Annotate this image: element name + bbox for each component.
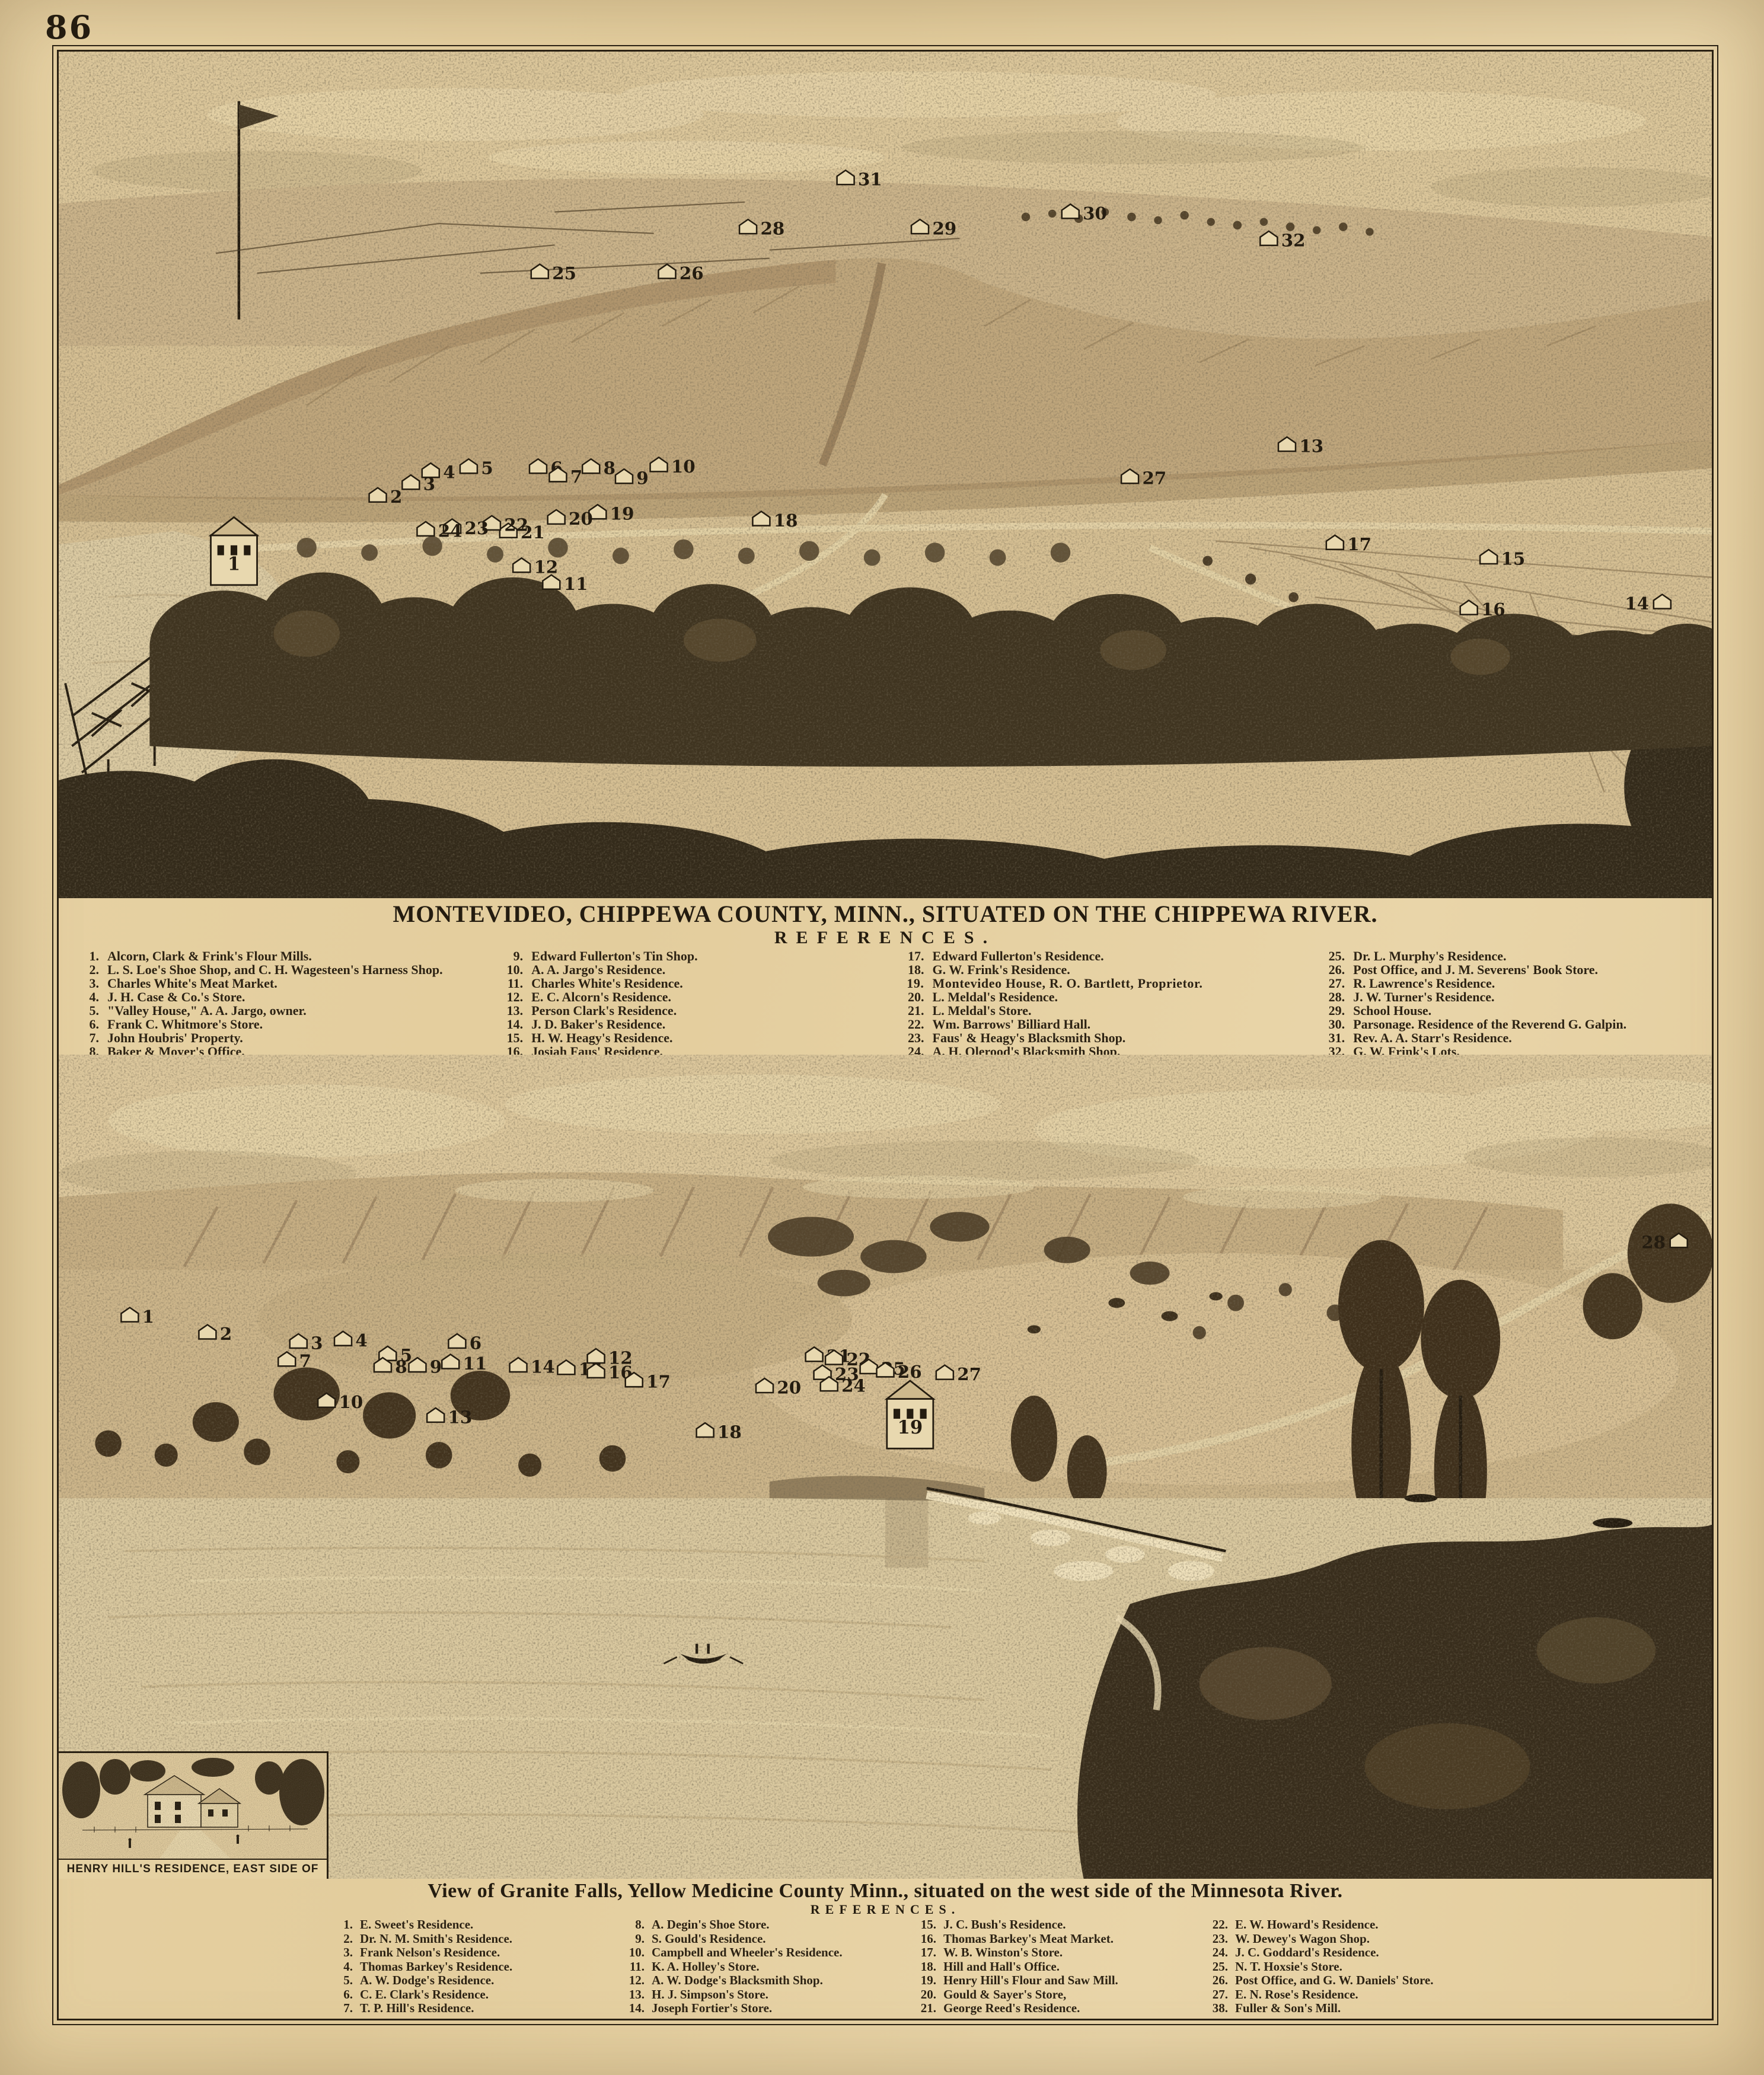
reference-number: 26. [1314, 963, 1345, 976]
reference-item: 38.Fuller & Son's Mill. [1202, 2001, 1494, 2016]
reference-item: 22.Wm. Barrows' Billiard Hall. [894, 1017, 1315, 1031]
svg-text:24: 24 [841, 1375, 866, 1396]
reference-number: 22. [894, 1017, 924, 1031]
svg-text:29: 29 [932, 218, 956, 238]
litho-grain [59, 1753, 327, 1859]
reference-item: 21.George Reed's Residence. [910, 2001, 1202, 2016]
reference-item: 9.S. Gould's Residence. [618, 1932, 910, 1946]
reference-number: 7. [68, 1031, 99, 1045]
reference-label: Dr. L. Murphy's Residence. [1353, 949, 1506, 963]
reference-item: 1.E. Sweet's Residence. [327, 1918, 618, 1932]
reference-item: 4.J. H. Case & Co.'s Store. [68, 990, 492, 1004]
svg-text:1: 1 [228, 554, 240, 575]
reference-label: A. Degin's Shoe Store. [652, 1918, 770, 1932]
svg-text:5: 5 [481, 458, 493, 478]
reference-number: 31. [1314, 1031, 1345, 1045]
reference-item: 6.C. E. Clark's Residence. [327, 1988, 618, 2002]
reference-item: 11.Charles White's Residence. [492, 976, 893, 990]
reference-item: 18.Hill and Hall's Office. [910, 1960, 1202, 1974]
reference-label: Post Office, and J. M. Severens' Book St… [1353, 963, 1598, 976]
svg-text:18: 18 [774, 510, 798, 531]
reference-item: 14.Joseph Fortier's Store. [618, 2001, 910, 2016]
reference-number: 9. [492, 949, 523, 963]
reference-label: K. A. Holley's Store. [652, 1960, 760, 1974]
reference-number: 17. [910, 1946, 936, 1960]
reference-item: 26.Post Office, and G. W. Daniels' Store… [1202, 1974, 1494, 1988]
reference-label: S. Gould's Residence. [652, 1932, 766, 1946]
reference-label: W. Dewey's Wagon Shop. [1235, 1932, 1370, 1946]
reference-label: Hill and Hall's Office. [943, 1960, 1060, 1974]
reference-item: 23.Faus' & Heagy's Blacksmith Shop. [894, 1031, 1315, 1045]
svg-text:7: 7 [299, 1351, 311, 1371]
reference-number: 22. [1202, 1918, 1228, 1932]
reference-label: School House. [1353, 1004, 1431, 1017]
reference-label: Rev. A. A. Starr's Residence. [1353, 1031, 1512, 1045]
reference-item: 16.Thomas Barkey's Meat Market. [910, 1932, 1202, 1946]
reference-label: J. H. Case & Co.'s Store. [107, 990, 245, 1004]
svg-text:14: 14 [531, 1356, 555, 1377]
reference-number: 27. [1314, 976, 1345, 990]
montevideo-birdseye-view: 1234567891011121314151617181920212223242… [59, 52, 1712, 898]
reference-label: E. N. Rose's Residence. [1235, 1988, 1358, 2002]
reference-item: 1.Alcorn, Clark & Frink's Flour Mills. [68, 949, 492, 963]
reference-label: A. A. Jargo's Residence. [531, 963, 665, 976]
montevideo-title: MONTEVIDEO, CHIPPEWA COUNTY, MINN., SITU… [59, 901, 1712, 928]
reference-number: 15. [910, 1918, 936, 1932]
reference-number: 3. [327, 1946, 353, 1960]
svg-text:4: 4 [355, 1330, 367, 1351]
page-number: 86 [45, 9, 93, 45]
reference-label: Alcorn, Clark & Frink's Flour Mills. [107, 949, 312, 963]
reference-item: 6.Frank C. Whitmore's Store. [68, 1017, 492, 1031]
svg-text:8: 8 [395, 1356, 407, 1377]
reference-number: 21. [894, 1004, 924, 1017]
svg-text:6: 6 [470, 1332, 481, 1353]
reference-item: 15.J. C. Bush's Residence. [910, 1918, 1202, 1932]
reference-label: Joseph Fortier's Store. [652, 2001, 772, 2016]
svg-text:18: 18 [717, 1421, 742, 1442]
reference-number: 8. [618, 1918, 645, 1932]
svg-text:28: 28 [761, 218, 785, 238]
svg-text:13: 13 [1299, 436, 1323, 456]
svg-text:10: 10 [671, 456, 696, 477]
reference-item: 11.K. A. Holley's Store. [618, 1960, 910, 1974]
svg-text:23: 23 [464, 518, 489, 538]
reference-label: A. W. Dodge's Residence. [360, 1974, 494, 1988]
svg-text:2: 2 [220, 1323, 232, 1344]
reference-number: 25. [1314, 949, 1345, 963]
reference-number: 27. [1202, 1988, 1228, 2002]
reference-item: 27.E. N. Rose's Residence. [1202, 1988, 1494, 2002]
svg-text:27: 27 [957, 1364, 981, 1384]
reference-label: Edward Fullerton's Tin Shop. [531, 949, 697, 963]
reference-item: 5.A. W. Dodge's Residence. [327, 1974, 618, 1988]
svg-text:30: 30 [1083, 203, 1107, 224]
svg-text:22: 22 [504, 515, 528, 535]
henry-hill-residence-inset: HENRY HILL'S RESIDENCE, EAST SIDE OF THE… [59, 1751, 328, 1879]
reference-label: Charles White's Residence. [531, 976, 683, 990]
reference-item: 20.L. Meldal's Residence. [894, 990, 1315, 1004]
svg-text:7: 7 [570, 467, 582, 487]
reference-item: 26.Post Office, and J. M. Severens' Book… [1314, 963, 1712, 976]
reference-number: 18. [910, 1960, 936, 1974]
reference-item: 8.A. Degin's Shoe Store. [618, 1918, 910, 1932]
reference-number: 16. [910, 1932, 936, 1946]
svg-text:15: 15 [1501, 548, 1526, 569]
reference-column: 9.Edward Fullerton's Tin Shop.10.A. A. J… [492, 949, 893, 1058]
reference-number: 30. [1314, 1017, 1345, 1031]
svg-text:9: 9 [430, 1356, 442, 1377]
reference-number: 18. [894, 963, 924, 976]
reference-label: L. S. Loe's Shoe Shop, and C. H. Wageste… [107, 963, 443, 976]
reference-column: 15.J. C. Bush's Residence.16.Thomas Bark… [910, 1918, 1202, 2016]
reference-item: 22.E. W. Howard's Residence. [1202, 1918, 1494, 1932]
reference-item: 10.A. A. Jargo's Residence. [492, 963, 893, 976]
reference-number: 23. [894, 1031, 924, 1045]
reference-number: 25. [1202, 1960, 1228, 1974]
reference-label: H. W. Heagy's Residence. [531, 1031, 672, 1045]
reference-column: 1.E. Sweet's Residence.2.Dr. N. M. Smith… [327, 1918, 618, 2016]
reference-column: 25.Dr. L. Murphy's Residence.26.Post Off… [1314, 949, 1712, 1058]
reference-item: 14.J. D. Baker's Residence. [492, 1017, 893, 1031]
reference-label: Parsonage. Residence of the Reverend G. … [1353, 1017, 1626, 1031]
svg-text:2: 2 [390, 487, 402, 507]
svg-text:31: 31 [858, 170, 882, 190]
reference-number: 2. [68, 963, 99, 976]
svg-text:16: 16 [1481, 599, 1505, 620]
reference-item: 25.N. T. Hoxsie's Store. [1202, 1960, 1494, 1974]
reference-label: Fuller & Son's Mill. [1235, 2001, 1341, 2016]
reference-item: 13.Person Clark's Residence. [492, 1004, 893, 1017]
reference-number: 38. [1202, 2001, 1228, 2016]
reference-label: Gould & Sayer's Store, [943, 1988, 1066, 2002]
reference-item: 12.E. C. Alcorn's Residence. [492, 990, 893, 1004]
reference-label: J. C. Bush's Residence. [943, 1918, 1066, 1932]
reference-label: N. T. Hoxsie's Store. [1235, 1960, 1342, 1974]
reference-number: 10. [492, 963, 523, 976]
reference-number: 28. [1314, 990, 1345, 1004]
reference-item: 2.L. S. Loe's Shoe Shop, and C. H. Wages… [68, 963, 492, 976]
reference-label: R. Lawrence's Residence. [1353, 976, 1495, 990]
svg-text:10: 10 [339, 1391, 363, 1412]
reference-item: 10.Campbell and Wheeler's Residence. [618, 1946, 910, 1960]
reference-item: 13.H. J. Simpson's Store. [618, 1988, 910, 2002]
reference-item: 17.Edward Fullerton's Residence. [894, 949, 1315, 963]
reference-item: 18.G. W. Frink's Residence. [894, 963, 1315, 976]
svg-text:12: 12 [534, 557, 559, 577]
svg-text:17: 17 [646, 1371, 671, 1392]
reference-label: L. Meldal's Residence. [933, 990, 1058, 1004]
granite-falls-birdseye-view: 1234567891011121314151617181920212223242… [59, 1055, 1712, 1879]
reference-number: 14. [618, 2001, 645, 2016]
reference-label: "Valley House," A. A. Jargo, owner. [107, 1004, 307, 1017]
reference-number: 15. [492, 1031, 523, 1045]
svg-text:20: 20 [777, 1377, 801, 1397]
montevideo-reference-list: 1.Alcorn, Clark & Frink's Flour Mills.2.… [59, 949, 1712, 1058]
svg-text:19: 19 [610, 504, 634, 524]
reference-number: 6. [68, 1017, 99, 1031]
reference-label: J. W. Turner's Residence. [1353, 990, 1494, 1004]
reference-number: 12. [618, 1974, 645, 1988]
reference-number: 3. [68, 976, 99, 990]
reference-item: 25.Dr. L. Murphy's Residence. [1314, 949, 1712, 963]
reference-number: 1. [327, 1918, 353, 1932]
reference-number: 12. [492, 990, 523, 1004]
svg-text:25: 25 [552, 263, 576, 283]
reference-label: Dr. N. M. Smith's Residence. [360, 1932, 512, 1946]
reference-item: 5."Valley House," A. A. Jargo, owner. [68, 1004, 492, 1017]
reference-label: Montevideo House, R. O. Bartlett, Propri… [933, 976, 1203, 990]
svg-text:26: 26 [680, 263, 704, 283]
reference-number: 11. [618, 1960, 645, 1974]
reference-item: 9.Edward Fullerton's Tin Shop. [492, 949, 893, 963]
reference-label: J. D. Baker's Residence. [531, 1017, 665, 1031]
reference-label: Campbell and Wheeler's Residence. [652, 1946, 843, 1960]
reference-item: 7.John Houbris' Property. [68, 1031, 492, 1045]
reference-number: 14. [492, 1017, 523, 1031]
inset-caption: HENRY HILL'S RESIDENCE, EAST SIDE OF THE… [59, 1859, 327, 1879]
reference-label: George Reed's Residence. [943, 2001, 1080, 2016]
reference-number: 5. [68, 1004, 99, 1017]
reference-number: 26. [1202, 1974, 1228, 1988]
reference-column: 8.A. Degin's Shoe Store.9.S. Gould's Res… [618, 1918, 910, 2016]
reference-item: 7.T. P. Hill's Residence. [327, 2001, 618, 2016]
reference-label: H. J. Simpson's Store. [652, 1988, 768, 2002]
reference-label: Post Office, and G. W. Daniels' Store. [1235, 1974, 1433, 1988]
svg-text:8: 8 [604, 458, 615, 478]
reference-label: A. W. Dodge's Blacksmith Shop. [652, 1974, 823, 1988]
reference-label: E. W. Howard's Residence. [1235, 1918, 1379, 1932]
reference-number: 7. [327, 2001, 353, 2016]
reference-column: 17.Edward Fullerton's Residence.18.G. W.… [894, 949, 1315, 1058]
reference-item: 24.J. C. Goddard's Residence. [1202, 1946, 1494, 1960]
reference-label: E. C. Alcorn's Residence. [531, 990, 671, 1004]
reference-number: 24. [1202, 1946, 1228, 1960]
svg-text:3: 3 [311, 1332, 323, 1353]
reference-label: Wm. Barrows' Billiard Hall. [933, 1017, 1091, 1031]
reference-number: 13. [618, 1988, 645, 2002]
reference-label: Faus' & Heagy's Blacksmith Shop. [933, 1031, 1126, 1045]
reference-label: L. Meldal's Store. [933, 1004, 1032, 1017]
reference-item: 4.Thomas Barkey's Residence. [327, 1960, 618, 1974]
reference-label: Frank Nelson's Residence. [360, 1946, 500, 1960]
reference-number: 29. [1314, 1004, 1345, 1017]
reference-label: Frank C. Whitmore's Store. [107, 1017, 263, 1031]
reference-number: 19. [910, 1974, 936, 1988]
reference-label: Henry Hill's Flour and Saw Mill. [943, 1974, 1118, 1988]
reference-label: T. P. Hill's Residence. [360, 2001, 474, 2016]
svg-text:1: 1 [142, 1306, 154, 1327]
reference-item: 31.Rev. A. A. Starr's Residence. [1314, 1031, 1712, 1045]
reference-item: 19.Henry Hill's Flour and Saw Mill. [910, 1974, 1202, 1988]
reference-column: 1.Alcorn, Clark & Frink's Flour Mills.2.… [68, 949, 492, 1058]
litho-grain [59, 52, 1712, 898]
reference-number: 19. [894, 976, 924, 990]
granite-falls-references-heading: REFERENCES. [59, 1902, 1712, 1917]
reference-item: 17.W. B. Winston's Store. [910, 1946, 1202, 1960]
reference-item: 3.Frank Nelson's Residence. [327, 1946, 618, 1960]
reference-label: E. Sweet's Residence. [360, 1918, 473, 1932]
reference-number: 9. [618, 1932, 645, 1946]
reference-item: 15.H. W. Heagy's Residence. [492, 1031, 893, 1045]
reference-item: 27.R. Lawrence's Residence. [1314, 976, 1712, 990]
reference-number: 17. [894, 949, 924, 963]
reference-number: 13. [492, 1004, 523, 1017]
atlas-page: 86 [0, 0, 1764, 2075]
reference-label: Thomas Barkey's Residence. [360, 1960, 512, 1974]
reference-item: 12.A. W. Dodge's Blacksmith Shop. [618, 1974, 910, 1988]
reference-number: 20. [894, 990, 924, 1004]
svg-text:19: 19 [897, 1417, 923, 1438]
svg-text:26: 26 [898, 1361, 922, 1382]
reference-label: J. C. Goddard's Residence. [1235, 1946, 1379, 1960]
reference-item: 21.L. Meldal's Store. [894, 1004, 1315, 1017]
granite-falls-reference-list: 1.E. Sweet's Residence.2.Dr. N. M. Smith… [327, 1918, 1712, 2016]
reference-label: W. B. Winston's Store. [943, 1946, 1063, 1960]
reference-item: 3.Charles White's Meat Market. [68, 976, 492, 990]
reference-label: Charles White's Meat Market. [107, 976, 277, 990]
reference-number: 6. [327, 1988, 353, 2002]
svg-text:17: 17 [1347, 534, 1371, 554]
svg-text:20: 20 [569, 509, 593, 529]
svg-text:11: 11 [564, 574, 588, 594]
montevideo-references-heading: REFERENCES. [59, 928, 1712, 948]
reference-label: C. E. Clark's Residence. [360, 1988, 489, 2002]
svg-text:4: 4 [443, 462, 455, 483]
reference-number: 2. [327, 1932, 353, 1946]
reference-number: 1. [68, 949, 99, 963]
svg-text:27: 27 [1143, 468, 1167, 489]
montevideo-references: MONTEVIDEO, CHIPPEWA COUNTY, MINN., SITU… [59, 898, 1712, 1055]
reference-number: 4. [327, 1960, 353, 1974]
reference-number: 21. [910, 2001, 936, 2016]
svg-text:9: 9 [636, 468, 648, 489]
granite-falls-references: View of Granite Falls, Yellow Medicine C… [59, 1879, 1712, 2019]
reference-label: Thomas Barkey's Meat Market. [943, 1932, 1114, 1946]
reference-number: 11. [492, 976, 523, 990]
granite-falls-title: View of Granite Falls, Yellow Medicine C… [59, 1880, 1712, 1902]
svg-text:24: 24 [438, 521, 462, 541]
reference-number: 5. [327, 1974, 353, 1988]
reference-label: John Houbris' Property. [107, 1031, 243, 1045]
reference-label: Person Clark's Residence. [531, 1004, 677, 1017]
reference-number: 23. [1202, 1932, 1228, 1946]
reference-number: 20. [910, 1988, 936, 2002]
reference-item: 30.Parsonage. Residence of the Reverend … [1314, 1017, 1712, 1031]
reference-item: 2.Dr. N. M. Smith's Residence. [327, 1932, 618, 1946]
svg-text:14: 14 [1625, 593, 1649, 614]
page-frame: 1234567891011121314151617181920212223242… [57, 50, 1714, 2020]
reference-item: 28.J. W. Turner's Residence. [1314, 990, 1712, 1004]
reference-item: 29.School House. [1314, 1004, 1712, 1017]
svg-text:11: 11 [463, 1353, 487, 1374]
svg-text:28: 28 [1641, 1232, 1666, 1253]
reference-item: 20.Gould & Sayer's Store, [910, 1988, 1202, 2002]
reference-number: 4. [68, 990, 99, 1004]
reference-label: Edward Fullerton's Residence. [933, 949, 1104, 963]
svg-text:32: 32 [1281, 230, 1306, 250]
reference-column: 22.E. W. Howard's Residence.23.W. Dewey'… [1202, 1918, 1494, 2016]
reference-item: 19.Montevideo House, R. O. Bartlett, Pro… [894, 976, 1315, 990]
svg-text:13: 13 [448, 1406, 473, 1427]
reference-number: 10. [618, 1946, 645, 1960]
reference-label: G. W. Frink's Residence. [933, 963, 1070, 976]
reference-item: 23.W. Dewey's Wagon Shop. [1202, 1932, 1494, 1946]
